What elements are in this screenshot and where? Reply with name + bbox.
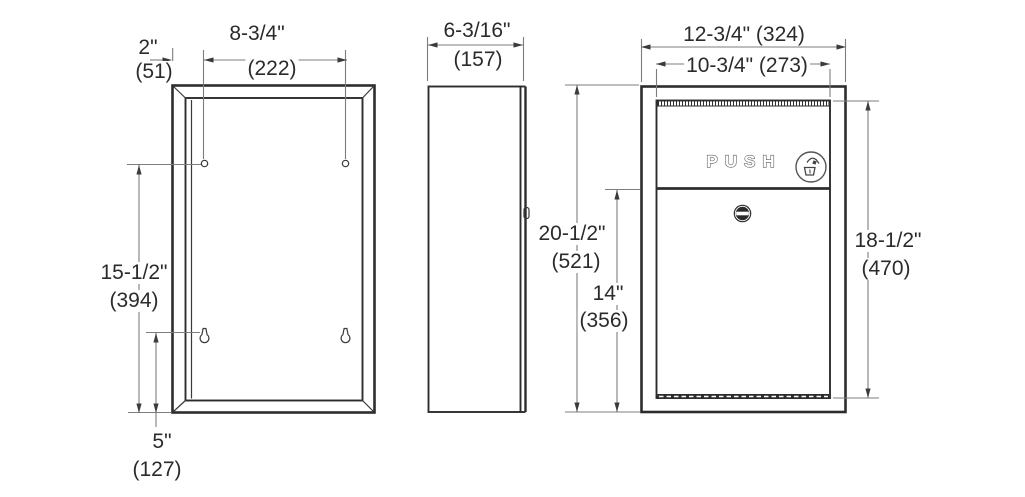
side-view xyxy=(429,87,530,413)
front-view: PUSH xyxy=(642,87,846,413)
dim-flap-height-inches: 14" xyxy=(591,283,626,305)
push-flap-label: PUSH xyxy=(706,152,781,171)
bevel-miter xyxy=(174,87,187,100)
dim-hole-spacing-inches: 8-3/4" xyxy=(227,23,286,45)
bevel-miter xyxy=(174,400,187,412)
mounting-hole-icon xyxy=(201,160,207,166)
dim-overall-height-mm: (521) xyxy=(549,251,602,273)
dim-hole-height-inches: 15-1/2" xyxy=(99,262,170,284)
back-panel-outline xyxy=(173,86,375,413)
dim-depth-inches: 6-3/16" xyxy=(442,20,513,42)
dim-keyhole-offset-mm: (127) xyxy=(130,459,183,481)
dim-overall-width: 12-3/4" (324) xyxy=(681,24,807,46)
dim-overall-height-inches: 20-1/2" xyxy=(537,223,608,245)
dimension-lines xyxy=(127,37,879,427)
dim-door-height-inches: 18-1/2" xyxy=(853,230,924,252)
dim-flap-height-mm: (356) xyxy=(577,310,630,332)
keyhole-slot-icon xyxy=(200,329,209,343)
bevel-miter xyxy=(362,87,374,100)
door-top-hinge-hatch xyxy=(658,101,830,107)
dim-hole-spacing-mm: (222) xyxy=(245,58,298,80)
dim-depth-mm: (157) xyxy=(451,49,504,71)
cam-lock-icon xyxy=(734,205,752,223)
back-panel-bevel xyxy=(186,98,363,401)
bevel-miter xyxy=(362,400,374,412)
keyhole-slot-icon xyxy=(341,329,350,343)
dim-hole-height-mm: (394) xyxy=(107,290,160,312)
dim-door-height-mm: (470) xyxy=(859,258,912,280)
cabinet-outline xyxy=(642,87,846,413)
dim-door-width: 10-3/4" (273) xyxy=(684,55,810,77)
dim-keyhole-offset-inches: 5" xyxy=(150,431,173,453)
side-body-outline xyxy=(429,87,521,413)
mounting-hole-icon xyxy=(342,160,348,166)
door-panel xyxy=(657,101,831,399)
dim-back-edge-offset-inches: 2" xyxy=(136,37,159,59)
dim-back-edge-offset-mm: (51) xyxy=(133,61,174,83)
technical-drawing-canvas: PUSH xyxy=(0,0,1025,497)
dispose-trash-icon xyxy=(796,152,826,182)
back-view xyxy=(173,86,375,413)
